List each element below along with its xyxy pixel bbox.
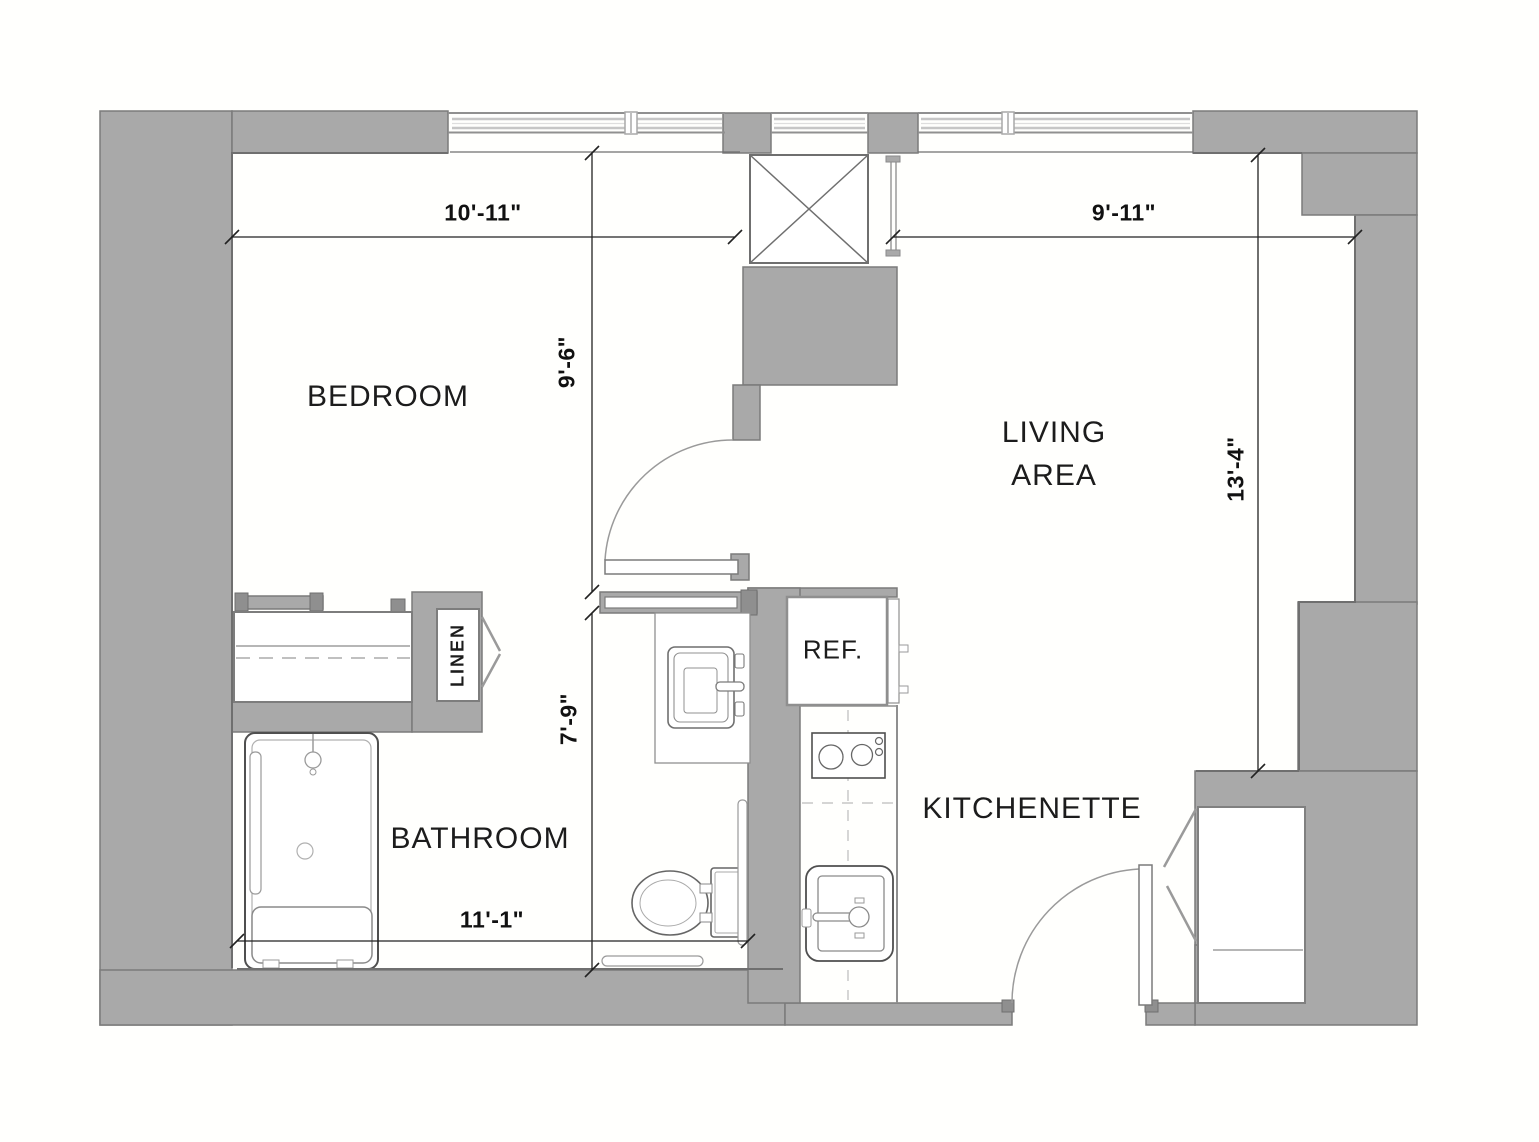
wall-bottom-bathroom xyxy=(100,970,785,1025)
shower-head-icon xyxy=(305,752,321,768)
entry-door-swing-arc xyxy=(1012,869,1139,1003)
cooktop xyxy=(812,733,885,778)
hall-door-leaf xyxy=(605,560,738,574)
refrigerator-door xyxy=(888,599,899,703)
dim-text-bathroom-width: 11'-1" xyxy=(460,907,524,934)
kitchen-sink xyxy=(802,866,893,961)
dim-text-bathroom-depth: 7'-9" xyxy=(556,693,583,745)
toilet xyxy=(632,868,744,937)
hall-door xyxy=(605,440,738,574)
floor-plan: BEDROOM LIVING AREA BATHROOM KITCHENETTE… xyxy=(0,0,1539,1142)
wardrobe-post-left xyxy=(235,593,248,611)
wardrobe-closet xyxy=(234,612,412,702)
wall-left xyxy=(100,111,232,1025)
wall-right-notch-top xyxy=(1302,153,1417,215)
living-label-line1: LIVING xyxy=(1002,411,1106,454)
dim-text-living-depth: 13'-4" xyxy=(1223,436,1250,501)
entry-closet xyxy=(1164,807,1305,1003)
wardrobe-post-mid xyxy=(310,593,323,611)
dim-text-bedroom-width: 10'-11" xyxy=(444,200,521,227)
bathroom-sliding-door xyxy=(605,597,737,608)
wall-bottom-kitchen xyxy=(785,1003,1012,1025)
hall-door-swing-arc xyxy=(605,440,733,560)
shower-grab-bar xyxy=(250,752,261,894)
room-label-living-area: LIVING AREA xyxy=(1002,411,1106,497)
grab-bar-vertical xyxy=(738,800,747,945)
label-linen-closet: LINEN xyxy=(448,623,469,687)
wall-right-upper xyxy=(1355,215,1417,604)
window-pier-right xyxy=(868,113,918,153)
vanity-sink xyxy=(655,613,750,763)
faucet-icon xyxy=(716,682,744,691)
shower-bench xyxy=(252,907,372,963)
slider-end-cap xyxy=(741,590,757,615)
window-pier-left xyxy=(723,113,771,153)
linen-closet xyxy=(437,609,500,701)
entry-closet-bifold-doors xyxy=(1164,809,1196,941)
wall-top-right xyxy=(1193,111,1417,153)
wall-shaft-block xyxy=(743,267,897,385)
wall-top-left xyxy=(232,111,448,153)
shower xyxy=(245,733,378,969)
label-refrigerator: REF. xyxy=(803,635,863,666)
entry-door xyxy=(1012,865,1152,1005)
windows xyxy=(448,112,1193,152)
room-label-bedroom: BEDROOM xyxy=(307,380,469,414)
toilet-bowl xyxy=(632,871,708,935)
entry-door-leaf xyxy=(1139,865,1152,1005)
grab-bar-horizontal xyxy=(602,956,703,966)
room-label-bathroom: BATHROOM xyxy=(390,822,569,856)
dim-text-living-width: 9'-11" xyxy=(1092,200,1156,227)
dim-text-bedroom-depth: 9'-6" xyxy=(554,336,581,388)
living-label-line2: AREA xyxy=(1002,454,1106,497)
wall-hall-stub xyxy=(733,385,760,440)
wall-right-lower xyxy=(1298,602,1417,771)
room-label-kitchenette: KITCHENETTE xyxy=(922,792,1141,826)
elevator-shaft xyxy=(750,155,900,263)
linen-bifold-doors xyxy=(482,617,500,687)
floor-plan-drawing xyxy=(0,0,1539,1142)
wall-below-wardrobe xyxy=(232,700,412,732)
